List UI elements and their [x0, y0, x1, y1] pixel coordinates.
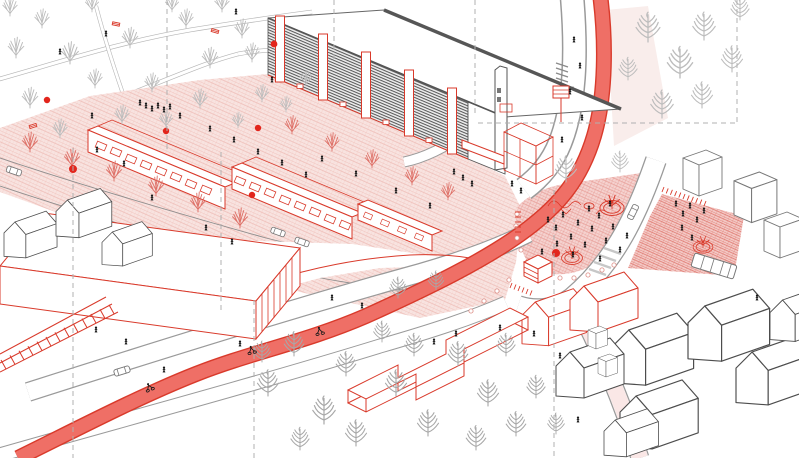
axonometric-masterplan: Axonometric architectural line-drawing o…: [0, 0, 799, 458]
masterplan-canvas: Axonometric architectural line-drawing o…: [0, 0, 799, 458]
